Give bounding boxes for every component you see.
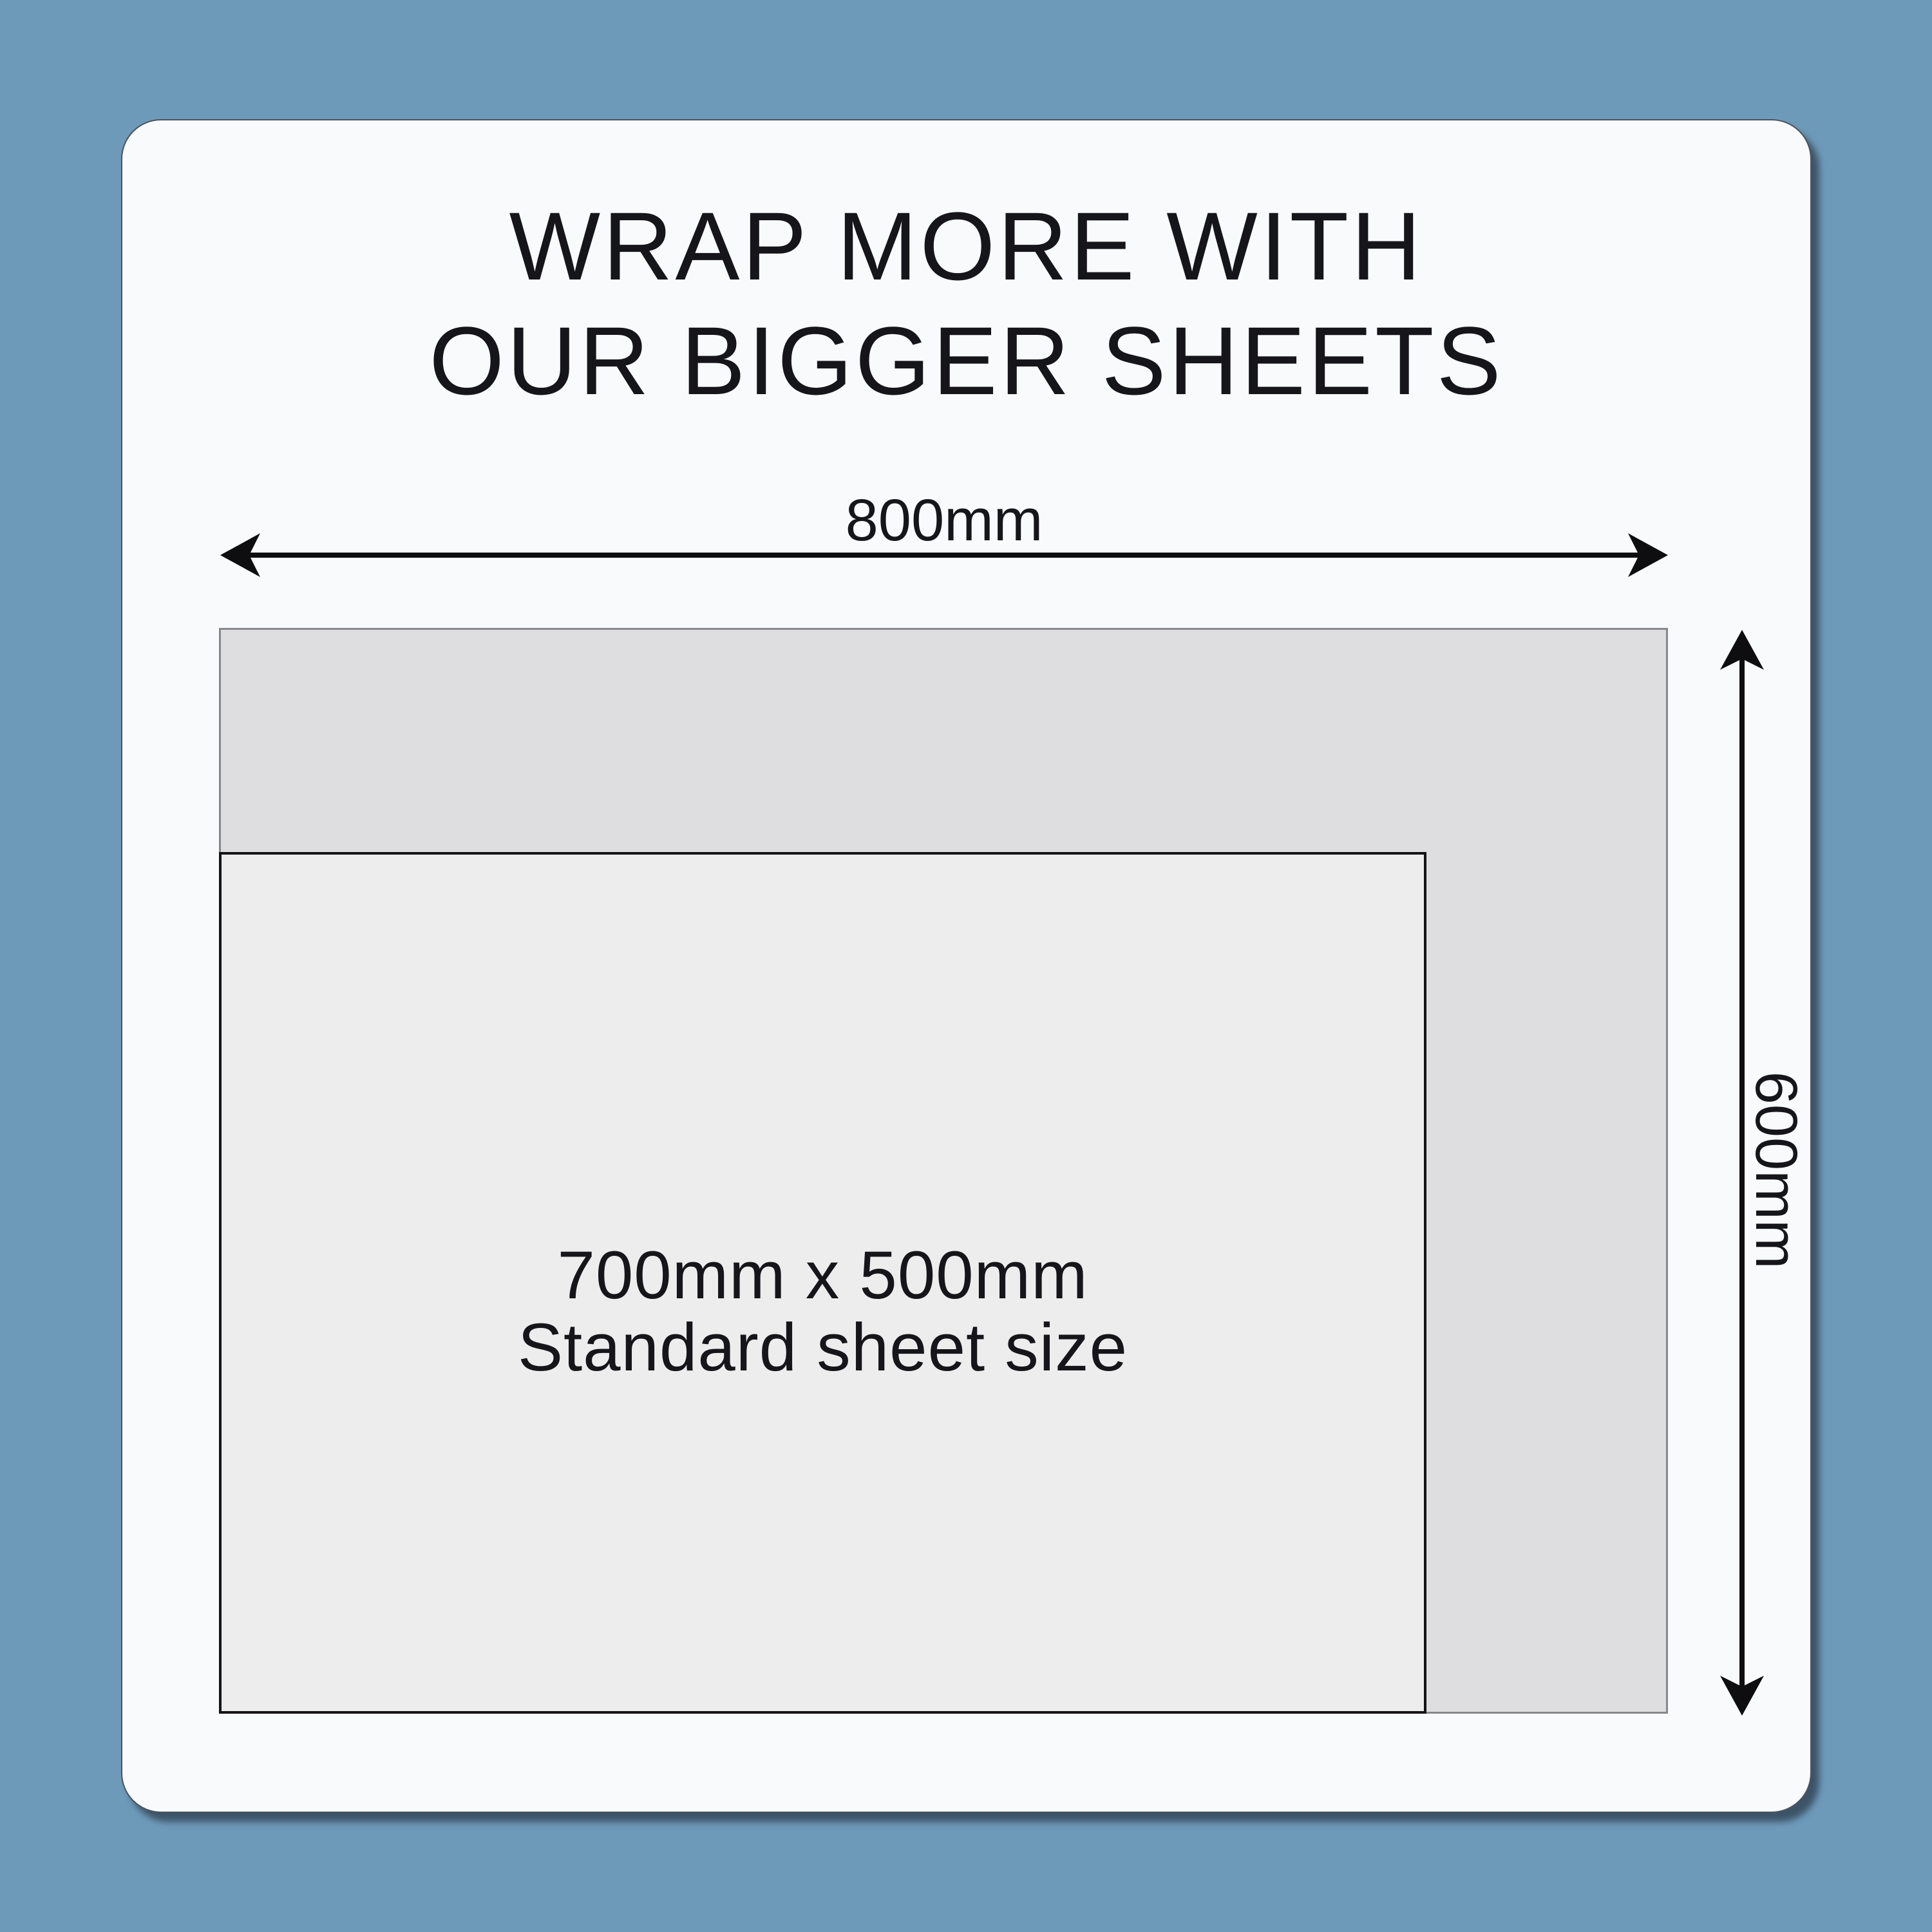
standard-sheet-label: 700mm x 500mm Standard sheet size — [222, 1240, 1424, 1384]
standard-sheet-size-text: 700mm x 500mm — [222, 1240, 1424, 1312]
title-line-2: OUR BIGGER SHEETS — [121, 303, 1812, 418]
page-title: WRAP MORE WITH OUR BIGGER SHEETS — [121, 189, 1812, 418]
standard-sheet-caption-text: Standard sheet size — [222, 1312, 1424, 1384]
width-dimension-label: 800mm — [220, 488, 1668, 553]
standard-sheet-rect: 700mm x 500mm Standard sheet size — [219, 852, 1426, 1714]
background: WRAP MORE WITH OUR BIGGER SHEETS 800mm 7… — [0, 0, 1932, 1932]
height-dimension-label: 600mm — [1744, 1072, 1808, 1269]
title-line-1: WRAP MORE WITH — [121, 189, 1812, 303]
